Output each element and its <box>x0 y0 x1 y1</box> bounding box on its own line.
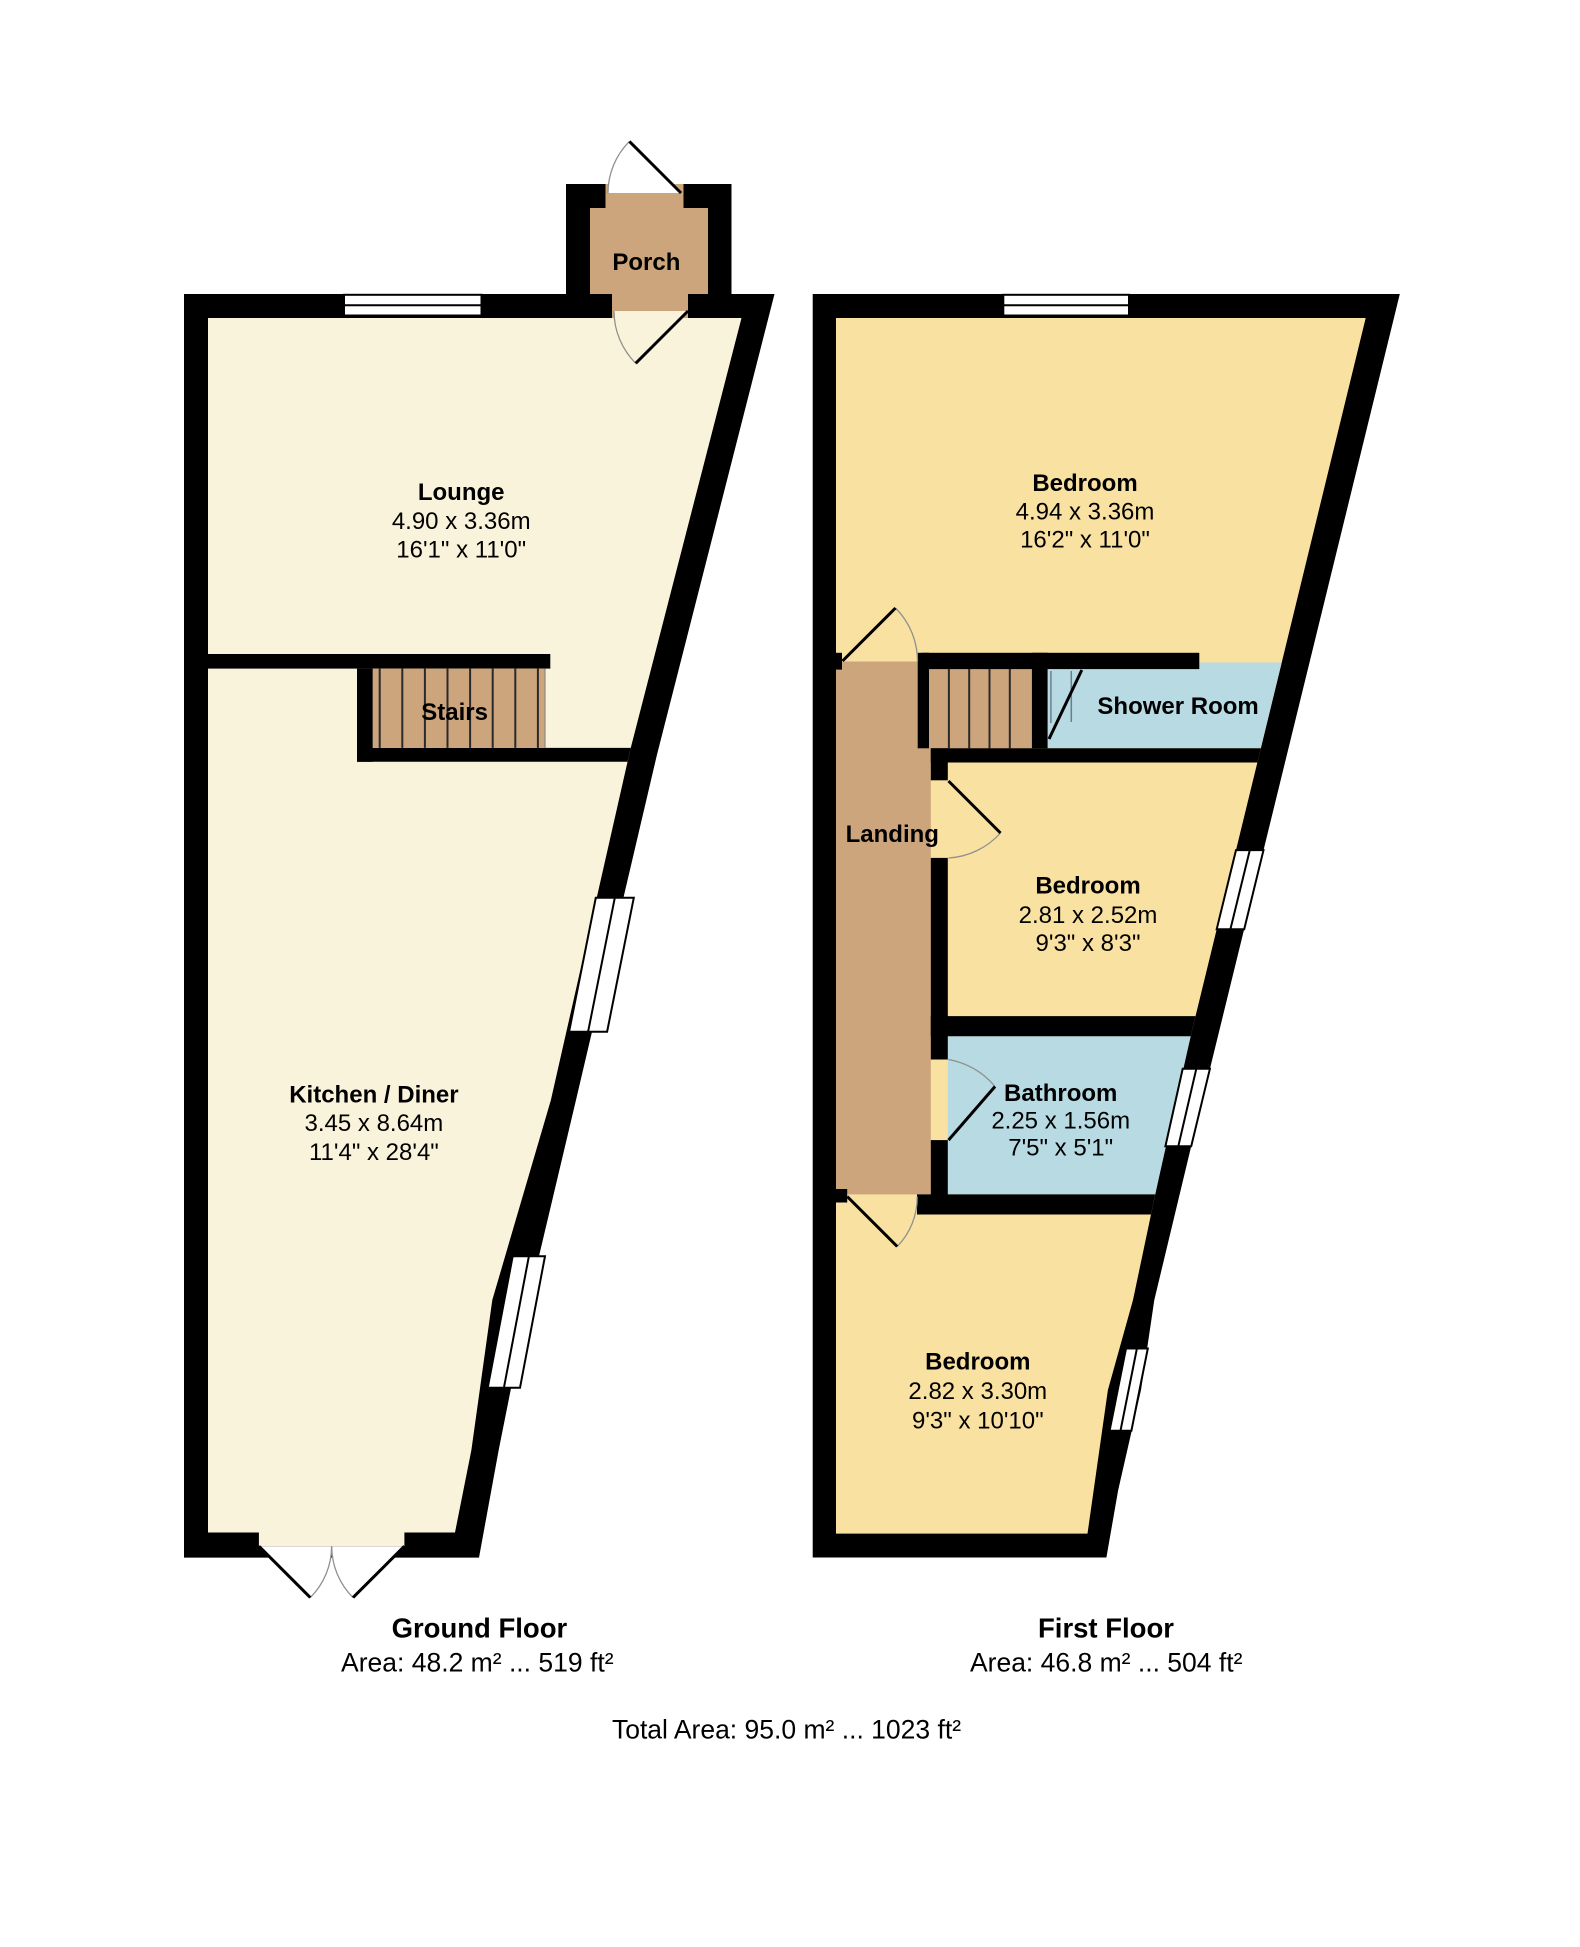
svg-text:4.94 x 3.36m: 4.94 x 3.36m <box>1016 498 1155 525</box>
svg-text:Porch: Porch <box>612 249 680 276</box>
svg-text:16'1" x 11'0": 16'1" x 11'0" <box>396 537 526 564</box>
svg-text:2.25 x 1.56m: 2.25 x 1.56m <box>991 1108 1130 1135</box>
svg-text:First Floor: First Floor <box>1038 1613 1174 1644</box>
svg-text:4.90 x 3.36m: 4.90 x 3.36m <box>392 508 531 535</box>
svg-text:Bathroom: Bathroom <box>1004 1080 1117 1107</box>
svg-text:11'4" x 28'4": 11'4" x 28'4" <box>309 1139 439 1166</box>
svg-text:Area: 46.8 m² ... 504 ft²: Area: 46.8 m² ... 504 ft² <box>970 1648 1243 1678</box>
svg-text:7'5" x 5'1": 7'5" x 5'1" <box>1008 1134 1113 1161</box>
svg-text:Lounge: Lounge <box>418 479 505 506</box>
svg-text:9'3" x 8'3": 9'3" x 8'3" <box>1036 930 1141 957</box>
svg-text:3.45 x 8.64m: 3.45 x 8.64m <box>305 1110 444 1137</box>
svg-text:Shower Room: Shower Room <box>1097 693 1258 720</box>
svg-text:Total Area: 95.0 m² ... 1023 f: Total Area: 95.0 m² ... 1023 ft² <box>612 1715 961 1745</box>
svg-text:Bedroom: Bedroom <box>1035 873 1140 900</box>
svg-text:2.82 x 3.30m: 2.82 x 3.30m <box>908 1378 1047 1405</box>
svg-text:Kitchen / Diner: Kitchen / Diner <box>289 1082 458 1109</box>
svg-text:Area: 48.2 m² ... 519 ft²: Area: 48.2 m² ... 519 ft² <box>341 1648 614 1678</box>
svg-text:16'2" x 11'0": 16'2" x 11'0" <box>1020 527 1150 554</box>
svg-text:Landing: Landing <box>846 821 939 848</box>
svg-text:2.81 x 2.52m: 2.81 x 2.52m <box>1019 902 1158 929</box>
svg-text:Bedroom: Bedroom <box>1032 470 1137 497</box>
svg-text:Ground Floor: Ground Floor <box>392 1613 568 1644</box>
svg-text:Stairs: Stairs <box>421 699 488 726</box>
svg-text:9'3" x 10'10": 9'3" x 10'10" <box>912 1408 1044 1435</box>
svg-text:Bedroom: Bedroom <box>925 1349 1030 1376</box>
